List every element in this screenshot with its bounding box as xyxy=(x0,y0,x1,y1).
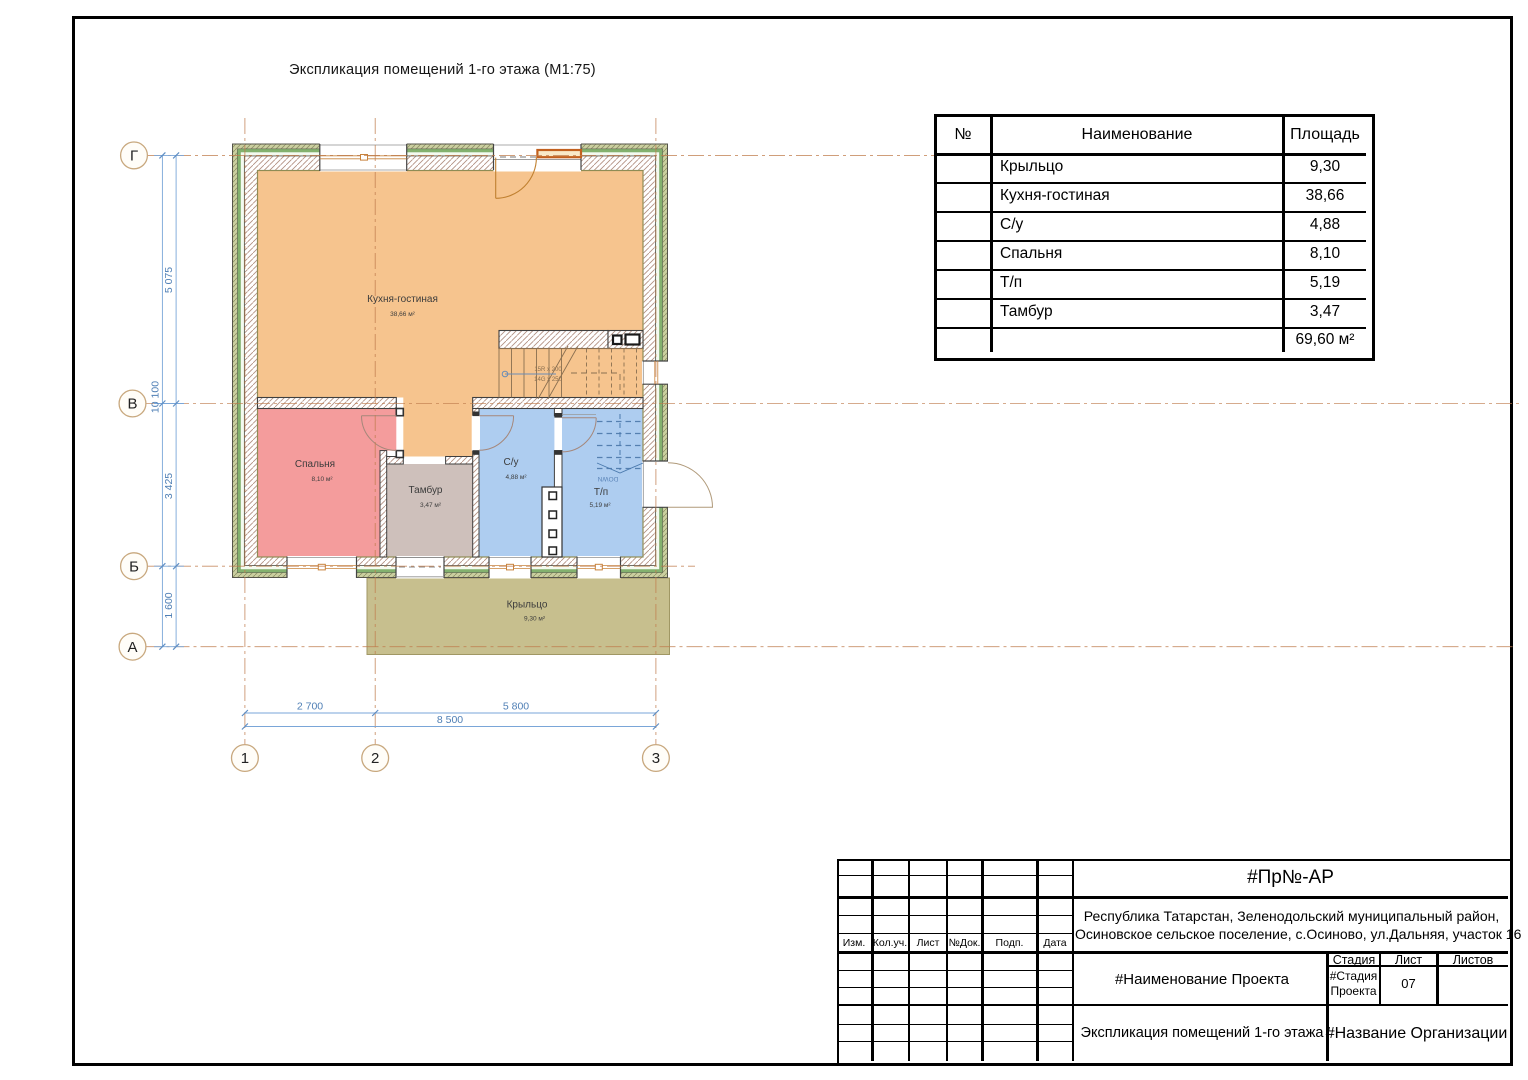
svg-text:14G x 250: 14G x 250 xyxy=(534,377,562,383)
svg-text:Т/п: Т/п xyxy=(594,487,608,498)
svg-text:8 500: 8 500 xyxy=(437,714,463,726)
svg-text:В: В xyxy=(127,396,137,413)
svg-text:Г: Г xyxy=(130,148,138,165)
svg-text:Кухня-гостиная: Кухня-гостиная xyxy=(367,294,438,305)
svg-text:1 600: 1 600 xyxy=(163,592,175,618)
svg-text:9,30 м²: 9,30 м² xyxy=(524,616,546,623)
svg-text:Крыльцо: Крыльцо xyxy=(507,600,548,611)
svg-text:С/у: С/у xyxy=(504,457,519,468)
svg-text:1: 1 xyxy=(241,750,249,767)
svg-text:Тамбур: Тамбур xyxy=(409,484,443,496)
svg-text:15R x 200: 15R x 200 xyxy=(534,367,562,373)
svg-text:А: А xyxy=(127,639,137,656)
svg-text:3 425: 3 425 xyxy=(163,473,175,499)
svg-text:Спальня: Спальня xyxy=(295,459,335,470)
svg-text:8,10 м²: 8,10 м² xyxy=(311,476,333,483)
svg-text:38,66 м²: 38,66 м² xyxy=(390,311,416,318)
svg-text:5,19 м²: 5,19 м² xyxy=(589,502,611,509)
svg-text:DOWN: DOWN xyxy=(597,475,618,482)
svg-text:3,47 м²: 3,47 м² xyxy=(420,502,442,509)
svg-text:10 100: 10 100 xyxy=(150,381,162,413)
svg-text:Б: Б xyxy=(129,558,139,575)
svg-text:5 800: 5 800 xyxy=(503,701,529,713)
svg-text:2 700: 2 700 xyxy=(297,701,323,713)
svg-text:4,88 м²: 4,88 м² xyxy=(505,474,527,481)
svg-text:5 075: 5 075 xyxy=(163,267,175,293)
svg-text:3: 3 xyxy=(652,750,660,767)
svg-text:2: 2 xyxy=(371,750,379,767)
